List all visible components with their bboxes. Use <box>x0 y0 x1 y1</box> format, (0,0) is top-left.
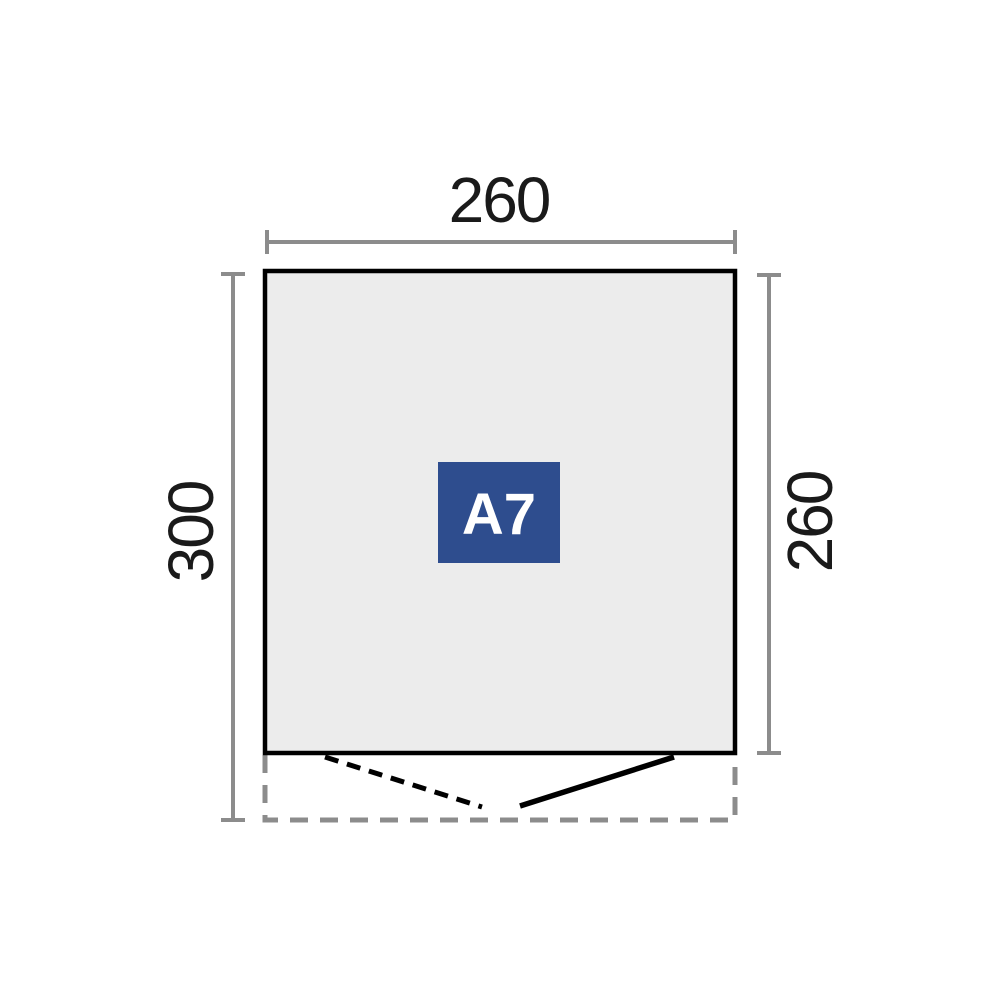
door-clearance-outline <box>265 755 735 820</box>
model-badge: A7 <box>438 462 560 563</box>
door-swing-group <box>325 757 674 807</box>
right-door-swing-line <box>520 757 674 806</box>
left-door-swing-dashed-line <box>325 757 482 807</box>
model-badge-label: A7 <box>462 482 536 547</box>
dimension-left-depth-label: 300 <box>155 481 227 582</box>
dimension-right-depth-label: 260 <box>774 471 846 572</box>
dimension-top-width-label: 260 <box>449 164 550 236</box>
floor-plan-svg: 260 300 260 A7 <box>0 0 1000 1000</box>
shed-floor-plan-diagram: 260 300 260 A7 <box>0 0 1000 1000</box>
